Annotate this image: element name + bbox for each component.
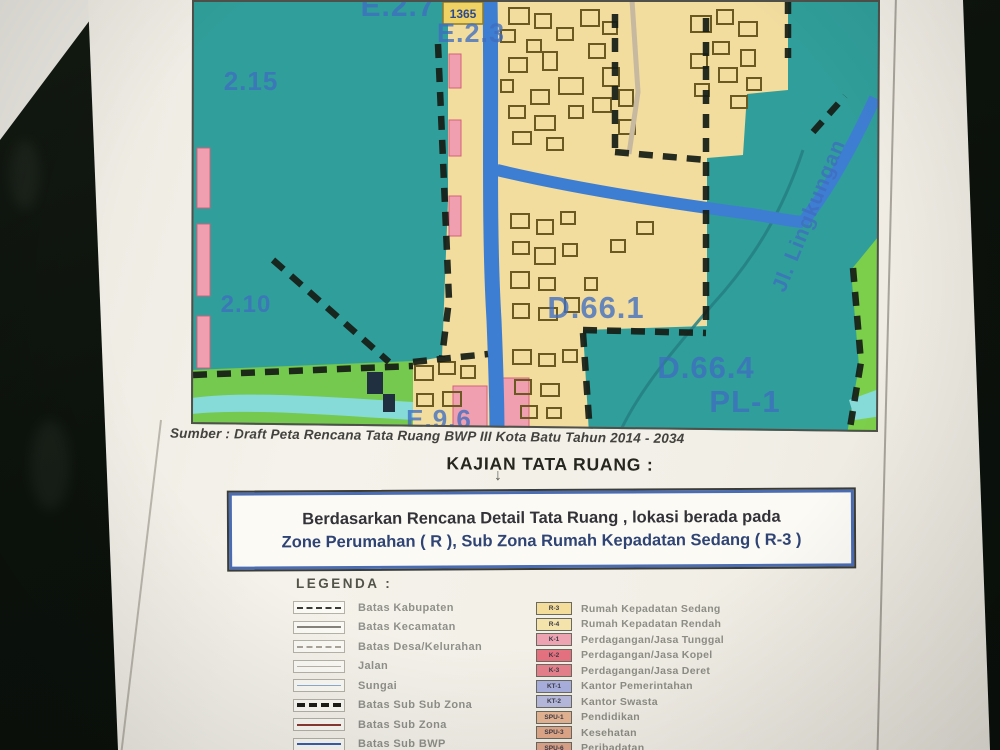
document-content: 1365 E.2.7E.2.32.152.10D.66.1D.66.4PL-1E…	[0, 0, 1000, 750]
dark-structure	[367, 372, 383, 394]
legend-row: SPU-3Kesehatan	[536, 726, 724, 739]
legend-row: Batas Sub Sub Zona	[293, 699, 482, 712]
legend-row: R-3Rumah Kepadatan Sedang	[536, 602, 724, 615]
legend-label: Kantor Swasta	[581, 696, 658, 708]
legend-row: R-4Rumah Kepadatan Rendah	[536, 618, 724, 631]
legend-color-swatch: SPU-6	[536, 742, 572, 750]
legend-row: SPU-1Pendidikan	[536, 711, 724, 724]
legend-row: Batas Kecamatan	[293, 621, 482, 634]
photo-of-spatial-plan-document: 1365 E.2.7E.2.32.152.10D.66.1D.66.4PL-1E…	[0, 0, 1000, 750]
legend-label: Batas Sub Zona	[358, 719, 447, 731]
legend-color-swatch: K-1	[536, 633, 572, 646]
legend-row: K-1Perdagangan/Jasa Tunggal	[536, 633, 724, 646]
pink-zone-patch	[197, 148, 210, 208]
legend-label: Kesehatan	[581, 727, 637, 739]
legend-line-swatch	[293, 660, 345, 673]
legend-label: Rumah Kepadatan Sedang	[581, 603, 721, 615]
legend-row: Sungai	[293, 679, 482, 692]
legend-color-swatch: KT-1	[536, 680, 572, 693]
legend-line-swatch	[293, 679, 345, 692]
map-label: D.66.1	[547, 290, 644, 325]
legend-label: Perdagangan/Jasa Deret	[581, 665, 710, 677]
legend-line-swatch	[293, 718, 345, 731]
legend-line-swatch	[293, 621, 345, 634]
pink-zone-patch	[449, 120, 461, 156]
legend-left-column: Batas KabupatenBatas KecamatanBatas Desa…	[293, 601, 482, 750]
map-label: 2.15	[224, 66, 279, 96]
pink-zone-patch	[449, 196, 461, 236]
zoning-map: 1365 E.2.7E.2.32.152.10D.66.1D.66.4PL-1E…	[191, 0, 882, 434]
legend-label: Kantor Pemerintahan	[581, 680, 693, 692]
down-arrow-icon: ↓	[494, 467, 502, 485]
legend-row: KT-2Kantor Swasta	[536, 695, 724, 708]
legend-row: Jalan	[293, 660, 482, 673]
legend-color-swatch: K-3	[536, 664, 572, 677]
main-road-vertical	[490, 0, 497, 434]
legend-label: Batas Kabupaten	[358, 602, 454, 614]
legend-label: Batas Sub BWP	[358, 738, 446, 750]
pink-zone-patch	[197, 316, 210, 368]
legend-label: Rumah Kepadatan Rendah	[581, 618, 721, 630]
legend-line-swatch	[293, 601, 345, 614]
legend-color-swatch: SPU-3	[536, 726, 572, 739]
legend-label: Jalan	[358, 660, 388, 672]
legend-title: LEGENDA :	[296, 576, 392, 591]
legend-label: Batas Sub Sub Zona	[358, 699, 472, 711]
legend-line-swatch	[293, 738, 345, 750]
legend-color-swatch: K-2	[536, 649, 572, 662]
legend-label: Pendidikan	[581, 711, 640, 723]
legend-row: KT-1Kantor Pemerintahan	[536, 680, 724, 693]
legend-label: Peribadatan	[581, 742, 644, 750]
map-label: 2.10	[221, 291, 272, 318]
legend-color-swatch: SPU-1	[536, 711, 572, 724]
map-label: E.2.7	[360, 0, 435, 23]
legend-color-swatch: KT-2	[536, 695, 572, 708]
legend-row: Batas Sub BWP	[293, 738, 482, 750]
legend-label: Perdagangan/Jasa Kopel	[581, 649, 712, 661]
legend-label: Sungai	[358, 680, 397, 692]
pink-zone-patch	[449, 54, 461, 88]
legend-row: Batas Sub Zona	[293, 718, 482, 731]
legend-row: K-3Perdagangan/Jasa Deret	[536, 664, 724, 677]
legend-row: SPU-6Peribadatan	[536, 742, 724, 750]
legend-row: Batas Kabupaten	[293, 601, 482, 614]
legend-line-swatch	[293, 640, 345, 653]
legend-color-swatch: R-4	[536, 618, 572, 631]
pink-zone-patch	[197, 224, 210, 296]
section-heading: KAJIAN TATA RUANG :	[380, 453, 720, 476]
legend-row: Batas Desa/Kelurahan	[293, 640, 482, 653]
map-label: D.66.4	[657, 350, 754, 385]
legend-color-swatch: R-3	[536, 602, 572, 615]
dark-structure	[383, 394, 395, 412]
legend-right-column: R-3Rumah Kepadatan SedangR-4Rumah Kepada…	[536, 602, 724, 750]
legend-line-swatch	[293, 699, 345, 712]
legend-label: Batas Kecamatan	[358, 621, 456, 633]
analysis-result-line-2: Zone Perumahan ( R ), Sub Zona Rumah Kep…	[232, 530, 851, 552]
analysis-result-box: Berdasarkan Rencana Detail Tata Ruang , …	[229, 489, 854, 569]
map-label: E.2.3	[437, 18, 505, 48]
analysis-result-line-1: Berdasarkan Rencana Detail Tata Ruang , …	[232, 507, 851, 529]
legend-row: K-2Perdagangan/Jasa Kopel	[536, 649, 724, 662]
legend-label: Perdagangan/Jasa Tunggal	[581, 634, 724, 646]
map-label: PL-1	[709, 384, 780, 419]
legend-label: Batas Desa/Kelurahan	[358, 641, 482, 653]
